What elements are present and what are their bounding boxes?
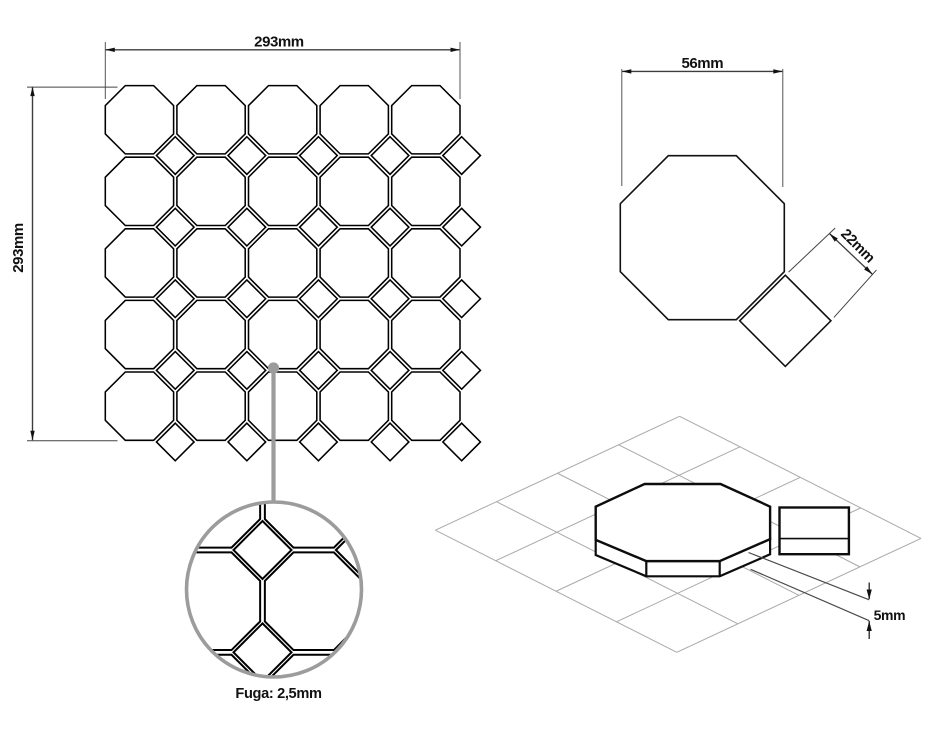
svg-text:293mm: 293mm (10, 223, 27, 273)
svg-text:5mm: 5mm (874, 607, 906, 623)
svg-text:56mm: 56mm (682, 55, 724, 72)
svg-text:293mm: 293mm (254, 33, 304, 50)
svg-text:Fuga: 2,5mm: Fuga: 2,5mm (235, 686, 322, 702)
